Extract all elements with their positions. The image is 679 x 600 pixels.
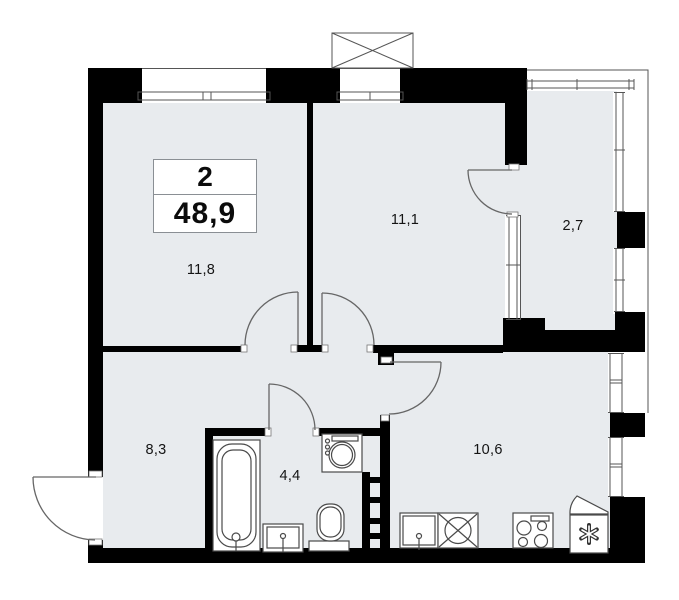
room-label-living-room: 11,8 xyxy=(187,262,215,278)
room-label-balcony: 2,7 xyxy=(562,218,583,234)
door-entrance xyxy=(33,477,96,540)
kitchen-sink-icon xyxy=(438,513,478,548)
floor-plan-canvas xyxy=(0,0,679,600)
floor-plan: 2 48,9 11,8 11,1 2,7 8,3 4,4 10,6 xyxy=(0,0,679,600)
wall-room-divider xyxy=(307,103,313,345)
vanity-sink-icon xyxy=(263,524,303,552)
room-label-hallway: 8,3 xyxy=(145,442,166,458)
bathtub-icon xyxy=(213,440,260,551)
room-label-bathroom: 4,4 xyxy=(279,468,300,484)
ventilation-box-icon xyxy=(332,33,413,68)
apartment-info-box: 2 48,9 xyxy=(153,159,257,233)
room-label-kitchen: 10,6 xyxy=(473,442,502,458)
rooms-count-label: 2 xyxy=(154,160,256,195)
washing-machine-icon xyxy=(322,434,362,472)
kitchen-counter-icon xyxy=(400,513,438,550)
stove-icon xyxy=(513,513,553,548)
total-area-label: 48,9 xyxy=(154,195,256,232)
room-label-bedroom: 11,1 xyxy=(391,212,419,228)
